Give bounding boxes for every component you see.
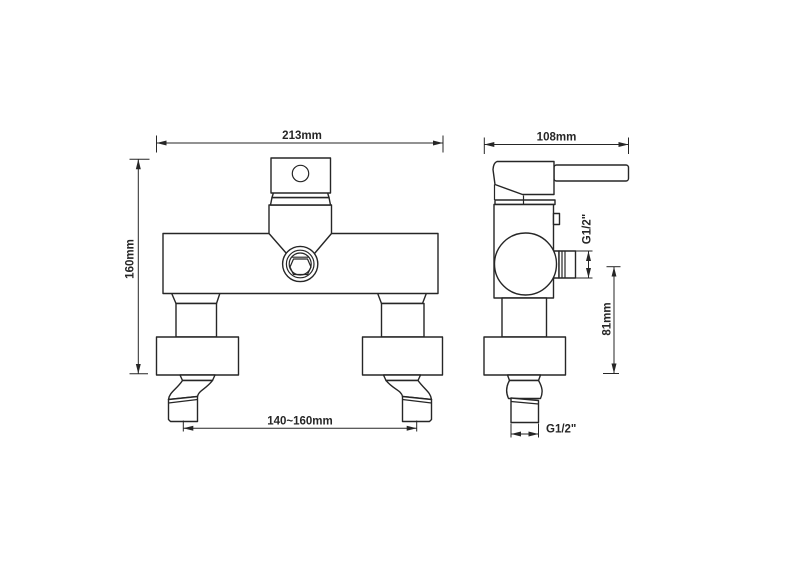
left-tube [176, 304, 217, 338]
side-lever-handle [554, 165, 629, 181]
side-eccentric [507, 381, 543, 399]
dim-label-height: 160mm [125, 239, 137, 279]
dim-label-outlet-thread: G1/2" [582, 214, 594, 244]
right-flange [378, 293, 427, 304]
front-neck-lower [271, 198, 331, 206]
dim-label-inlet-spacing: 140~160mm [267, 416, 333, 428]
side-view: 108mm G1/2" 81mm G1/2" [484, 132, 629, 438]
dim-label-inlet-thread: G1/2" [546, 424, 576, 436]
side-tube [502, 298, 547, 337]
right-union-nut [363, 337, 443, 375]
dim-label-depth: 108mm [537, 132, 577, 144]
dim-label-width: 213mm [282, 130, 322, 142]
left-union-nut [157, 337, 239, 375]
dim-inlet-spacing: 140~160mm [183, 416, 416, 432]
dim-label-outlet-height: 81mm [602, 302, 614, 335]
right-tube [382, 304, 425, 338]
front-right-inlet-leg [363, 293, 443, 422]
dim-outlet-height: 81mm [602, 267, 621, 374]
front-outlet-block [271, 158, 331, 193]
side-collar-lower [508, 375, 541, 381]
side-valve-head [493, 162, 554, 195]
dim-depth: 108mm [484, 132, 628, 155]
dim-inlet-thread: G1/2" [511, 424, 576, 438]
front-view: 213mm 160mm 140~160mm [125, 130, 444, 432]
technical-drawing-canvas: 213mm 160mm 140~160mm [0, 0, 800, 566]
faucet-dimension-drawing: 213mm 160mm 140~160mm [0, 0, 800, 566]
side-valve-circle [495, 233, 557, 295]
front-valve-outer-circle [283, 246, 318, 281]
dim-overall-width: 213mm [157, 130, 444, 153]
left-flange [172, 293, 221, 304]
left-collar [180, 375, 215, 381]
front-left-inlet-leg [157, 293, 239, 422]
dim-outlet-thread: G1/2" [576, 214, 594, 278]
side-body-step [554, 214, 560, 225]
dim-overall-height: 160mm [125, 159, 150, 373]
right-collar [384, 375, 421, 381]
side-union-nut [484, 337, 566, 375]
